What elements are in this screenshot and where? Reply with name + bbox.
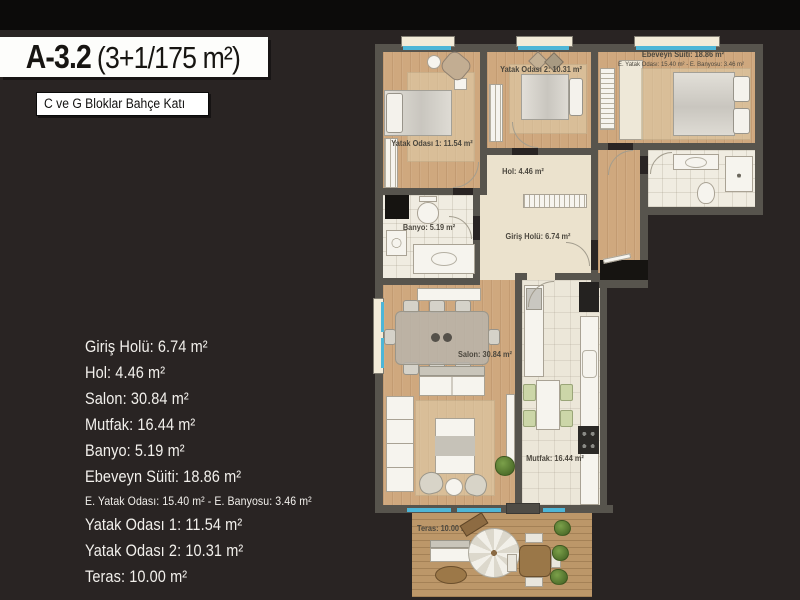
wall xyxy=(555,273,606,280)
list-item: Salon: 30.84 m² xyxy=(85,386,343,412)
window xyxy=(543,508,565,512)
room-label-mutfak: Mutfak: 16.44 m² xyxy=(509,454,601,463)
sink-basin xyxy=(685,157,707,168)
wall xyxy=(598,143,608,150)
floor-plan-page: A-3.2 (3+1/175 m²) C ve G Bloklar Bahçe … xyxy=(0,0,800,600)
room-label-ebeveyn: Ebeveyn Süiti: 18.86 m² xyxy=(617,50,749,59)
list-item: Yatak Odası 2: 10.31 m² xyxy=(85,538,343,564)
room-label-yatak-odasi-1: Yatak Odası 1: 11.54 m² xyxy=(386,139,478,148)
wall xyxy=(515,273,527,280)
plant xyxy=(552,545,569,561)
room-label-ebeveyn-sub: E. Yatak Odası: 15.40 m² - E. Banyosu: 3… xyxy=(607,61,754,68)
kitchen-sink xyxy=(582,350,597,378)
wall xyxy=(591,155,598,240)
bed-pillow xyxy=(733,76,750,102)
wall xyxy=(479,188,487,195)
room-area-list: Giriş Holü: 6.74 m² Hol: 4.46 m² Salon: … xyxy=(85,334,343,590)
shaft xyxy=(385,195,409,219)
kitchen-counter xyxy=(580,316,599,505)
room-label-salon: Salon: 30.84 m² xyxy=(439,350,531,359)
entry-closet xyxy=(523,194,587,208)
kitchen-chair xyxy=(560,410,573,427)
room-label-yatak-odasi-2: Yatak Odası 2: 10.31 m² xyxy=(493,65,589,74)
table-bowl xyxy=(431,333,440,342)
plant xyxy=(554,520,571,536)
stove xyxy=(578,426,599,454)
outdoor-dining-table xyxy=(519,545,551,577)
bed-pillow xyxy=(569,78,583,116)
wall xyxy=(375,188,453,195)
wall xyxy=(480,44,487,195)
window xyxy=(381,302,384,332)
outdoor-chair xyxy=(525,533,543,543)
window xyxy=(518,46,569,50)
unit-spec: (3+1/175 m²) xyxy=(97,40,240,76)
table-bowl xyxy=(443,333,452,342)
sink-basin xyxy=(431,252,457,266)
kitchen-chair xyxy=(523,410,536,427)
list-item-detail: E. Yatak Odası: 15.40 m² - E. Banyosu: 3… xyxy=(85,490,343,512)
kitchen-table xyxy=(536,380,560,430)
floor-plan: Yatak Odası 1: 11.54 m² Yatak Odası 2: 1… xyxy=(373,28,773,600)
list-item: Banyo: 5.19 m² xyxy=(85,438,343,464)
toilet-bowl xyxy=(417,202,439,224)
title-banner: A-3.2 (3+1/175 m²) xyxy=(0,37,268,77)
sofa xyxy=(419,376,485,396)
table-runner xyxy=(435,436,475,456)
side-table xyxy=(427,55,441,69)
wall xyxy=(375,278,480,285)
wall xyxy=(600,280,607,505)
round-table xyxy=(445,478,463,496)
room-label-hol: Hol: 4.46 m² xyxy=(490,167,556,176)
outdoor-coffee-table xyxy=(435,566,467,584)
washing-machine xyxy=(386,230,407,256)
list-item: Giriş Holü: 6.74 m² xyxy=(85,334,343,360)
kitchen-chair xyxy=(523,384,536,401)
wall xyxy=(473,188,480,216)
outdoor-chair xyxy=(507,554,517,572)
wardrobe xyxy=(600,68,615,130)
dresser-unit xyxy=(619,60,643,140)
shower xyxy=(725,156,753,192)
room-label-banyo: Banyo: 5.19 m² xyxy=(389,223,470,232)
sofa-back xyxy=(419,366,485,376)
page-title: A-3.2 (3+1/175 m²) xyxy=(0,38,240,76)
wall xyxy=(515,280,522,505)
bed-pillow xyxy=(733,108,750,134)
list-item: Teras: 10.00 m² xyxy=(85,564,343,590)
outdoor-chair xyxy=(525,577,543,587)
toilet xyxy=(697,182,715,204)
wall xyxy=(640,150,648,156)
fridge-tower xyxy=(579,282,599,312)
unit-code: A-3.2 xyxy=(26,38,91,76)
block-subtitle-text: C ve G Bloklar Bahçe Katı xyxy=(44,96,185,111)
outdoor-sofa-back xyxy=(430,540,470,548)
list-item: Hol: 4.46 m² xyxy=(85,360,343,386)
window xyxy=(457,508,501,512)
bed-pillow xyxy=(386,93,403,133)
dining-chair xyxy=(488,329,500,345)
block-subtitle-badge: C ve G Bloklar Bahçe Katı xyxy=(36,92,209,116)
kitchen-chair xyxy=(560,384,573,401)
outdoor-sofa xyxy=(430,548,470,562)
sideboard xyxy=(417,288,481,301)
window xyxy=(403,46,451,50)
list-item: Yatak Odası 1: 11.54 m² xyxy=(85,512,343,538)
wall xyxy=(633,143,763,150)
wall xyxy=(538,148,598,155)
wall xyxy=(640,207,763,215)
bed xyxy=(673,72,735,136)
room-label-giris-holu: Giriş Holü: 6.74 m² xyxy=(487,232,588,241)
top-black-bar xyxy=(0,0,800,30)
corner-sofa xyxy=(386,396,414,492)
list-item: Mutfak: 16.44 m² xyxy=(85,412,343,438)
wardrobe xyxy=(489,84,503,142)
wall xyxy=(480,148,512,155)
bed xyxy=(521,74,569,120)
plant xyxy=(550,569,568,585)
wall xyxy=(755,44,763,215)
window xyxy=(407,508,451,512)
wall xyxy=(640,174,648,207)
terrace-sliding-door xyxy=(506,503,540,514)
wall xyxy=(591,44,598,148)
list-item: Ebeveyn Süiti: 18.86 m² xyxy=(85,464,343,490)
